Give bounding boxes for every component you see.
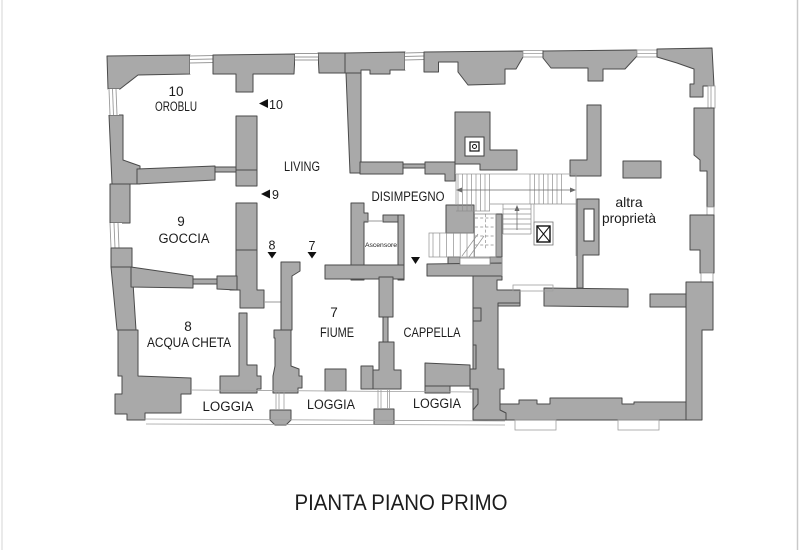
svg-text:7: 7 bbox=[330, 305, 338, 320]
svg-text:7: 7 bbox=[309, 239, 316, 253]
svg-text:altra: altra bbox=[615, 194, 642, 210]
svg-text:Ascensore: Ascensore bbox=[365, 242, 397, 249]
svg-text:9: 9 bbox=[272, 188, 279, 202]
svg-text:10: 10 bbox=[168, 84, 183, 99]
svg-text:9: 9 bbox=[177, 214, 185, 229]
svg-text:OROBLU: OROBLU bbox=[155, 99, 197, 114]
svg-text:GOCCIA: GOCCIA bbox=[159, 231, 210, 246]
svg-text:8: 8 bbox=[269, 239, 276, 253]
svg-text:LOGGIA: LOGGIA bbox=[203, 399, 254, 414]
svg-text:DISIMPEGNO: DISIMPEGNO bbox=[372, 189, 445, 204]
svg-text:10: 10 bbox=[269, 98, 283, 112]
svg-text:LIVING: LIVING bbox=[284, 159, 320, 174]
svg-text:LOGGIA: LOGGIA bbox=[307, 397, 355, 412]
svg-text:FIUME: FIUME bbox=[320, 325, 354, 340]
svg-text:ACQUA CHETA: ACQUA CHETA bbox=[147, 335, 231, 350]
svg-text:8: 8 bbox=[184, 319, 192, 334]
svg-text:LOGGIA: LOGGIA bbox=[413, 396, 461, 411]
svg-text:proprietà: proprietà bbox=[602, 210, 656, 226]
svg-text:PIANTA PIANO PRIMO: PIANTA PIANO PRIMO bbox=[295, 490, 508, 515]
svg-text:CAPPELLA: CAPPELLA bbox=[404, 325, 461, 340]
